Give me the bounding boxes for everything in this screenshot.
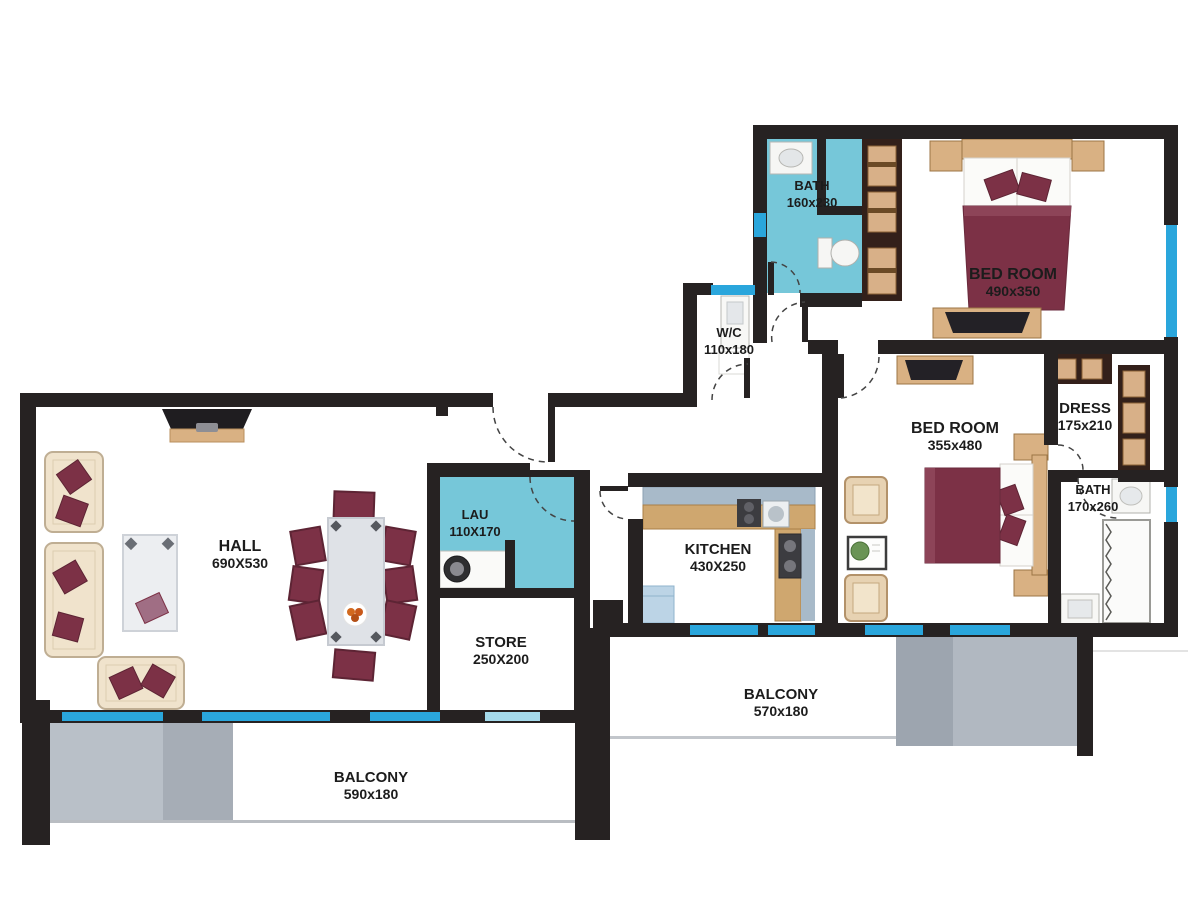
- room-name: DRESS: [1058, 400, 1113, 417]
- room-label-kitchen: KITCHEN 430X250: [685, 541, 752, 575]
- balcony-left-mat-light: [50, 723, 163, 823]
- window-bedroom-2-b: [950, 625, 1010, 635]
- room-label-balcony-right: BALCONY 570x180: [744, 686, 818, 720]
- floor-plan-drawing: [0, 0, 1200, 900]
- faint-boundary-line: [1093, 650, 1188, 652]
- room-dims: 110X170: [449, 523, 500, 540]
- window-store: [485, 712, 540, 721]
- room-label-bedroom-2: BED ROOM 355x480: [911, 420, 999, 454]
- room-name: BALCONY: [744, 686, 818, 703]
- sofa-top: [45, 452, 103, 532]
- window-bath-1: [754, 213, 766, 237]
- room-dims: 170x260: [1068, 498, 1119, 515]
- room-label-dress: DRESS 175x210: [1058, 400, 1113, 434]
- window-hall-3: [370, 712, 440, 721]
- toilet: [1061, 594, 1099, 624]
- balcony-left-edge: [50, 820, 575, 823]
- room-name: LAU: [449, 506, 500, 523]
- balcony-right-mat-light: [953, 637, 1077, 746]
- room-dims: 175x210: [1058, 417, 1113, 434]
- room-name: BALCONY: [334, 769, 408, 786]
- room-name: BATH: [787, 177, 838, 194]
- room-dims: 250X200: [473, 651, 529, 668]
- room-name: BED ROOM: [969, 266, 1057, 283]
- kitchen-door-leaf: [600, 486, 628, 491]
- bath-2-door-leaf: [1078, 470, 1118, 478]
- plant-table: [848, 537, 886, 569]
- sofa-middle: [45, 543, 103, 657]
- oven: [779, 534, 801, 578]
- armchair: [845, 477, 887, 523]
- laundry-door-leaf: [530, 470, 574, 477]
- balcony-left-mat-dark: [163, 723, 233, 823]
- window-kitchen-1: [690, 625, 758, 635]
- toilet: [818, 238, 859, 268]
- room-dims: 430X250: [685, 558, 752, 575]
- bath-1-door-leaf: [768, 262, 774, 295]
- balcony-right-edge: [610, 736, 896, 739]
- room-name: KITCHEN: [685, 541, 752, 558]
- counter-side-top: [801, 529, 815, 621]
- wardrobe-bedroom-1: [862, 139, 902, 301]
- window-bath-2: [1166, 487, 1177, 522]
- armchair: [845, 575, 887, 621]
- window-hall-2: [202, 712, 330, 721]
- plant-icon: [851, 542, 869, 560]
- bedroom-2-door-leaf: [838, 354, 844, 398]
- fridge: [638, 586, 674, 623]
- nightstand: [1072, 141, 1104, 171]
- room-label-store: STORE 250X200: [473, 634, 529, 668]
- floor-plan: HALL 690X530 BED ROOM 490x350 BATH 160x2…: [0, 0, 1200, 900]
- balcony-right-mat-dark: [896, 637, 953, 746]
- shower: [1103, 520, 1150, 623]
- room-label-balcony-left: BALCONY 590x180: [334, 769, 408, 803]
- bed-cover: [925, 468, 1000, 563]
- tv-unit-hall: [162, 409, 252, 442]
- nightstand: [930, 141, 962, 171]
- washing-machine: [444, 556, 470, 582]
- room-name: HALL: [212, 538, 268, 555]
- dining-table: [328, 518, 384, 645]
- room-name: BED ROOM: [911, 420, 999, 437]
- room-dims: 355x480: [911, 437, 999, 454]
- sofa-bottom: [98, 657, 184, 709]
- cooktop: [737, 499, 761, 527]
- room-dims: 690X530: [212, 555, 268, 572]
- room-dims: 570x180: [744, 703, 818, 720]
- tv-unit-bedroom-1: [933, 308, 1041, 338]
- tv-unit-bedroom-2: [897, 356, 973, 384]
- window-wc: [711, 285, 755, 295]
- laundry-furniture: [440, 551, 510, 588]
- window-bedroom-2-a: [865, 625, 923, 635]
- coffee-table: [123, 535, 177, 631]
- room-dims: 490x350: [969, 283, 1057, 300]
- room-name: BATH: [1068, 481, 1119, 498]
- headboard: [962, 139, 1072, 159]
- wardrobe-tall: [1118, 365, 1150, 470]
- window-kitchen-2: [768, 625, 815, 635]
- headboard: [1032, 455, 1047, 575]
- window-bedroom-1: [1166, 225, 1177, 337]
- entrance-door-leaf: [548, 407, 555, 462]
- bedroom-1-door-leaf: [802, 300, 808, 342]
- room-dims: 590x180: [334, 786, 408, 803]
- room-label-hall: HALL 690X530: [212, 538, 268, 572]
- room-label-bath-2: BATH 170x260: [1068, 481, 1119, 515]
- room-dims: 110x180: [704, 341, 754, 358]
- kitchen-sink: [763, 501, 789, 527]
- room-label-wc: W/C 110x180: [704, 324, 754, 358]
- room-label-laundry: LAU 110X170: [449, 506, 500, 540]
- dresser-cabinet: [1050, 354, 1112, 384]
- room-label-bath-1: BATH 160x230: [787, 177, 838, 211]
- room-dims: 160x230: [787, 194, 838, 211]
- window-hall-1: [62, 712, 163, 721]
- room-name: W/C: [704, 324, 754, 341]
- room-name: STORE: [473, 634, 529, 651]
- room-label-bedroom-1: BED ROOM 490x350: [969, 266, 1057, 300]
